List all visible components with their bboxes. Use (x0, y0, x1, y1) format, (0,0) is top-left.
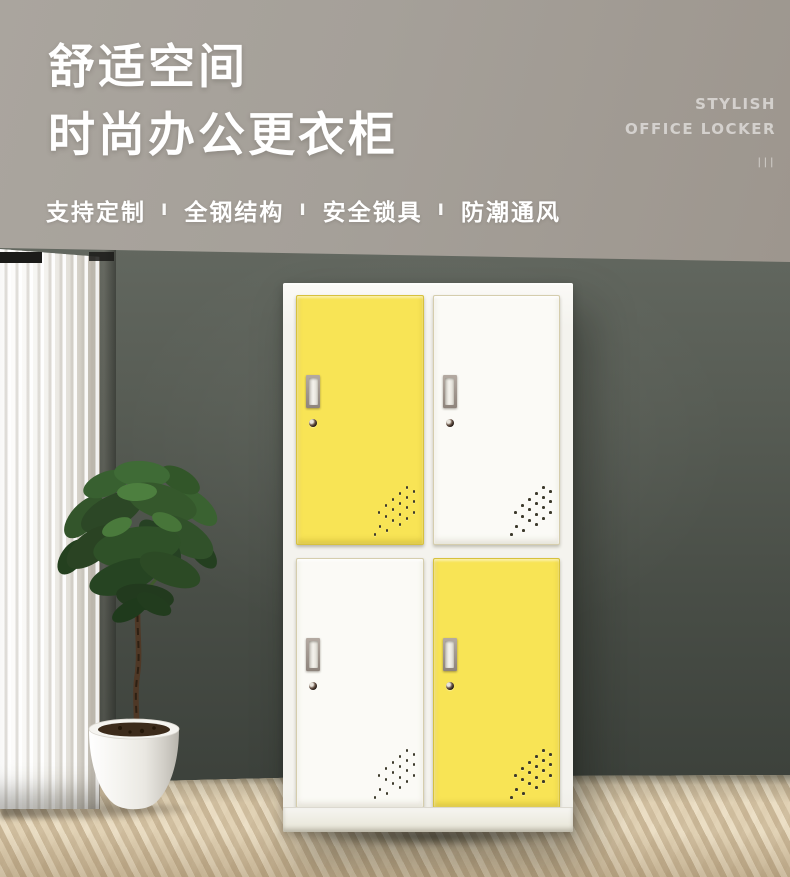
vent-dot (378, 511, 381, 514)
locker-cabinet (283, 283, 573, 832)
vent-dot (535, 776, 538, 779)
locker-door-top-left (296, 295, 424, 545)
vent-dot (535, 523, 538, 526)
vent-dot (514, 511, 517, 514)
vent-dot (542, 759, 545, 762)
vent-dot (535, 755, 538, 758)
vent-dot (542, 496, 545, 499)
vent-dot (528, 498, 531, 501)
plant-pot (89, 719, 179, 809)
tagline-line-2: OFFICE LOCKER (625, 117, 776, 142)
vent-dot (392, 782, 395, 785)
vent-dot (413, 774, 416, 777)
vent-dot (521, 504, 524, 507)
vent-dot (406, 496, 409, 499)
door-lock (309, 682, 317, 690)
vent-dot (528, 771, 531, 774)
vent-dot (535, 765, 538, 768)
vent-dot (542, 780, 545, 783)
vent-dot (510, 533, 513, 536)
vent-dot (399, 523, 402, 526)
vent-dot (392, 508, 395, 511)
door-handle (306, 638, 320, 671)
vent-dot (528, 782, 531, 785)
vent-dot (528, 508, 531, 511)
vent-dot (386, 529, 389, 532)
vent-dot (549, 490, 552, 493)
vent-dot (399, 502, 402, 505)
feature-item: 防潮通风 (461, 193, 561, 227)
vent-dot (549, 774, 552, 777)
vent-dot (535, 786, 538, 789)
vent-dot (535, 513, 538, 516)
vent-dot (528, 519, 531, 522)
vent-dot (399, 786, 402, 789)
locker-base (283, 807, 573, 832)
tagline-line-1: STYLISH (625, 92, 776, 117)
curtain-rod-end (89, 252, 114, 261)
vent-dot (522, 792, 525, 795)
locker-door-bottom-left (296, 558, 424, 808)
vent-dot (392, 771, 395, 774)
vent-dot (549, 511, 552, 514)
vent-dot (385, 778, 388, 781)
locker-doors (296, 295, 560, 808)
door-lock (446, 419, 454, 427)
vent-dot (542, 769, 545, 772)
vent-dot (385, 515, 388, 518)
vent-dot (378, 774, 381, 777)
vent-dot (515, 788, 518, 791)
headline-line-2: 时尚办公更衣柜 (48, 110, 398, 162)
feature-separator: I (161, 201, 169, 220)
locker-door-bottom-right (433, 558, 561, 808)
vent-dot (510, 796, 513, 799)
tagline: STYLISH OFFICE LOCKER ||| (625, 92, 776, 175)
vent-dot (413, 763, 416, 766)
handle-recess (309, 378, 318, 405)
vent-dot (379, 525, 382, 528)
door-lock (446, 682, 454, 690)
product-banner: 舒适空间 时尚办公更衣柜 支持定制 I 全钢结构 I 安全锁具 I 防潮通风 S… (0, 0, 790, 877)
vent-dot (385, 767, 388, 770)
vent-dot (374, 796, 377, 799)
vent-dot (413, 490, 416, 493)
vent-dot (392, 519, 395, 522)
vent-dot (385, 504, 388, 507)
door-handle (443, 638, 457, 671)
vent-dot (549, 763, 552, 766)
door-handle (443, 375, 457, 408)
vent-dot (549, 500, 552, 503)
vent-dot (379, 788, 382, 791)
vent-dot (406, 769, 409, 772)
vent-dot (413, 753, 416, 756)
vent-holes (372, 484, 418, 538)
vent-dot (514, 774, 517, 777)
vent-dot (406, 749, 409, 752)
vent-dot (542, 506, 545, 509)
feature-item: 安全锁具 (323, 193, 423, 227)
headline-line-1: 舒适空间 (48, 42, 248, 94)
vent-dot (392, 498, 395, 501)
vent-dot (521, 767, 524, 770)
vent-dot (406, 759, 409, 762)
triple-bar-icon: ||| (625, 150, 776, 175)
vent-dot (399, 492, 402, 495)
feature-list: 支持定制 I 全钢结构 I 安全锁具 I 防潮通风 (46, 193, 561, 227)
feature-item: 支持定制 (46, 193, 146, 227)
vent-dot (406, 506, 409, 509)
vent-dot (406, 517, 409, 520)
handle-recess (445, 641, 454, 668)
vent-dot (521, 778, 524, 781)
vent-dot (549, 753, 552, 756)
feature-separator: I (438, 201, 446, 220)
vent-dot (399, 513, 402, 516)
vent-dot (374, 533, 377, 536)
vent-dot (542, 517, 545, 520)
vent-dot (386, 792, 389, 795)
feature-separator: I (299, 201, 307, 220)
plant-leaves (52, 459, 224, 628)
vent-dot (413, 500, 416, 503)
vent-dot (542, 486, 545, 489)
locker-door-top-right (433, 295, 561, 545)
feature-item: 全钢结构 (184, 193, 284, 227)
vent-dot (521, 515, 524, 518)
vent-dot (406, 486, 409, 489)
vent-dot (399, 755, 402, 758)
plant-graphic (42, 452, 294, 822)
handle-recess (309, 641, 318, 668)
potted-plant (42, 452, 294, 822)
vent-dot (406, 780, 409, 783)
vent-dot (522, 529, 525, 532)
vent-dot (413, 511, 416, 514)
door-handle (306, 375, 320, 408)
vent-dot (535, 502, 538, 505)
vent-dot (399, 765, 402, 768)
vent-dot (535, 492, 538, 495)
vent-holes (508, 747, 554, 801)
vent-holes (372, 747, 418, 801)
door-lock (309, 419, 317, 427)
vent-holes (508, 484, 554, 538)
handle-recess (445, 378, 454, 405)
vent-dot (399, 776, 402, 779)
vent-dot (542, 749, 545, 752)
vent-dot (392, 761, 395, 764)
curtain-rod (0, 252, 42, 263)
vent-dot (515, 525, 518, 528)
vent-dot (528, 761, 531, 764)
